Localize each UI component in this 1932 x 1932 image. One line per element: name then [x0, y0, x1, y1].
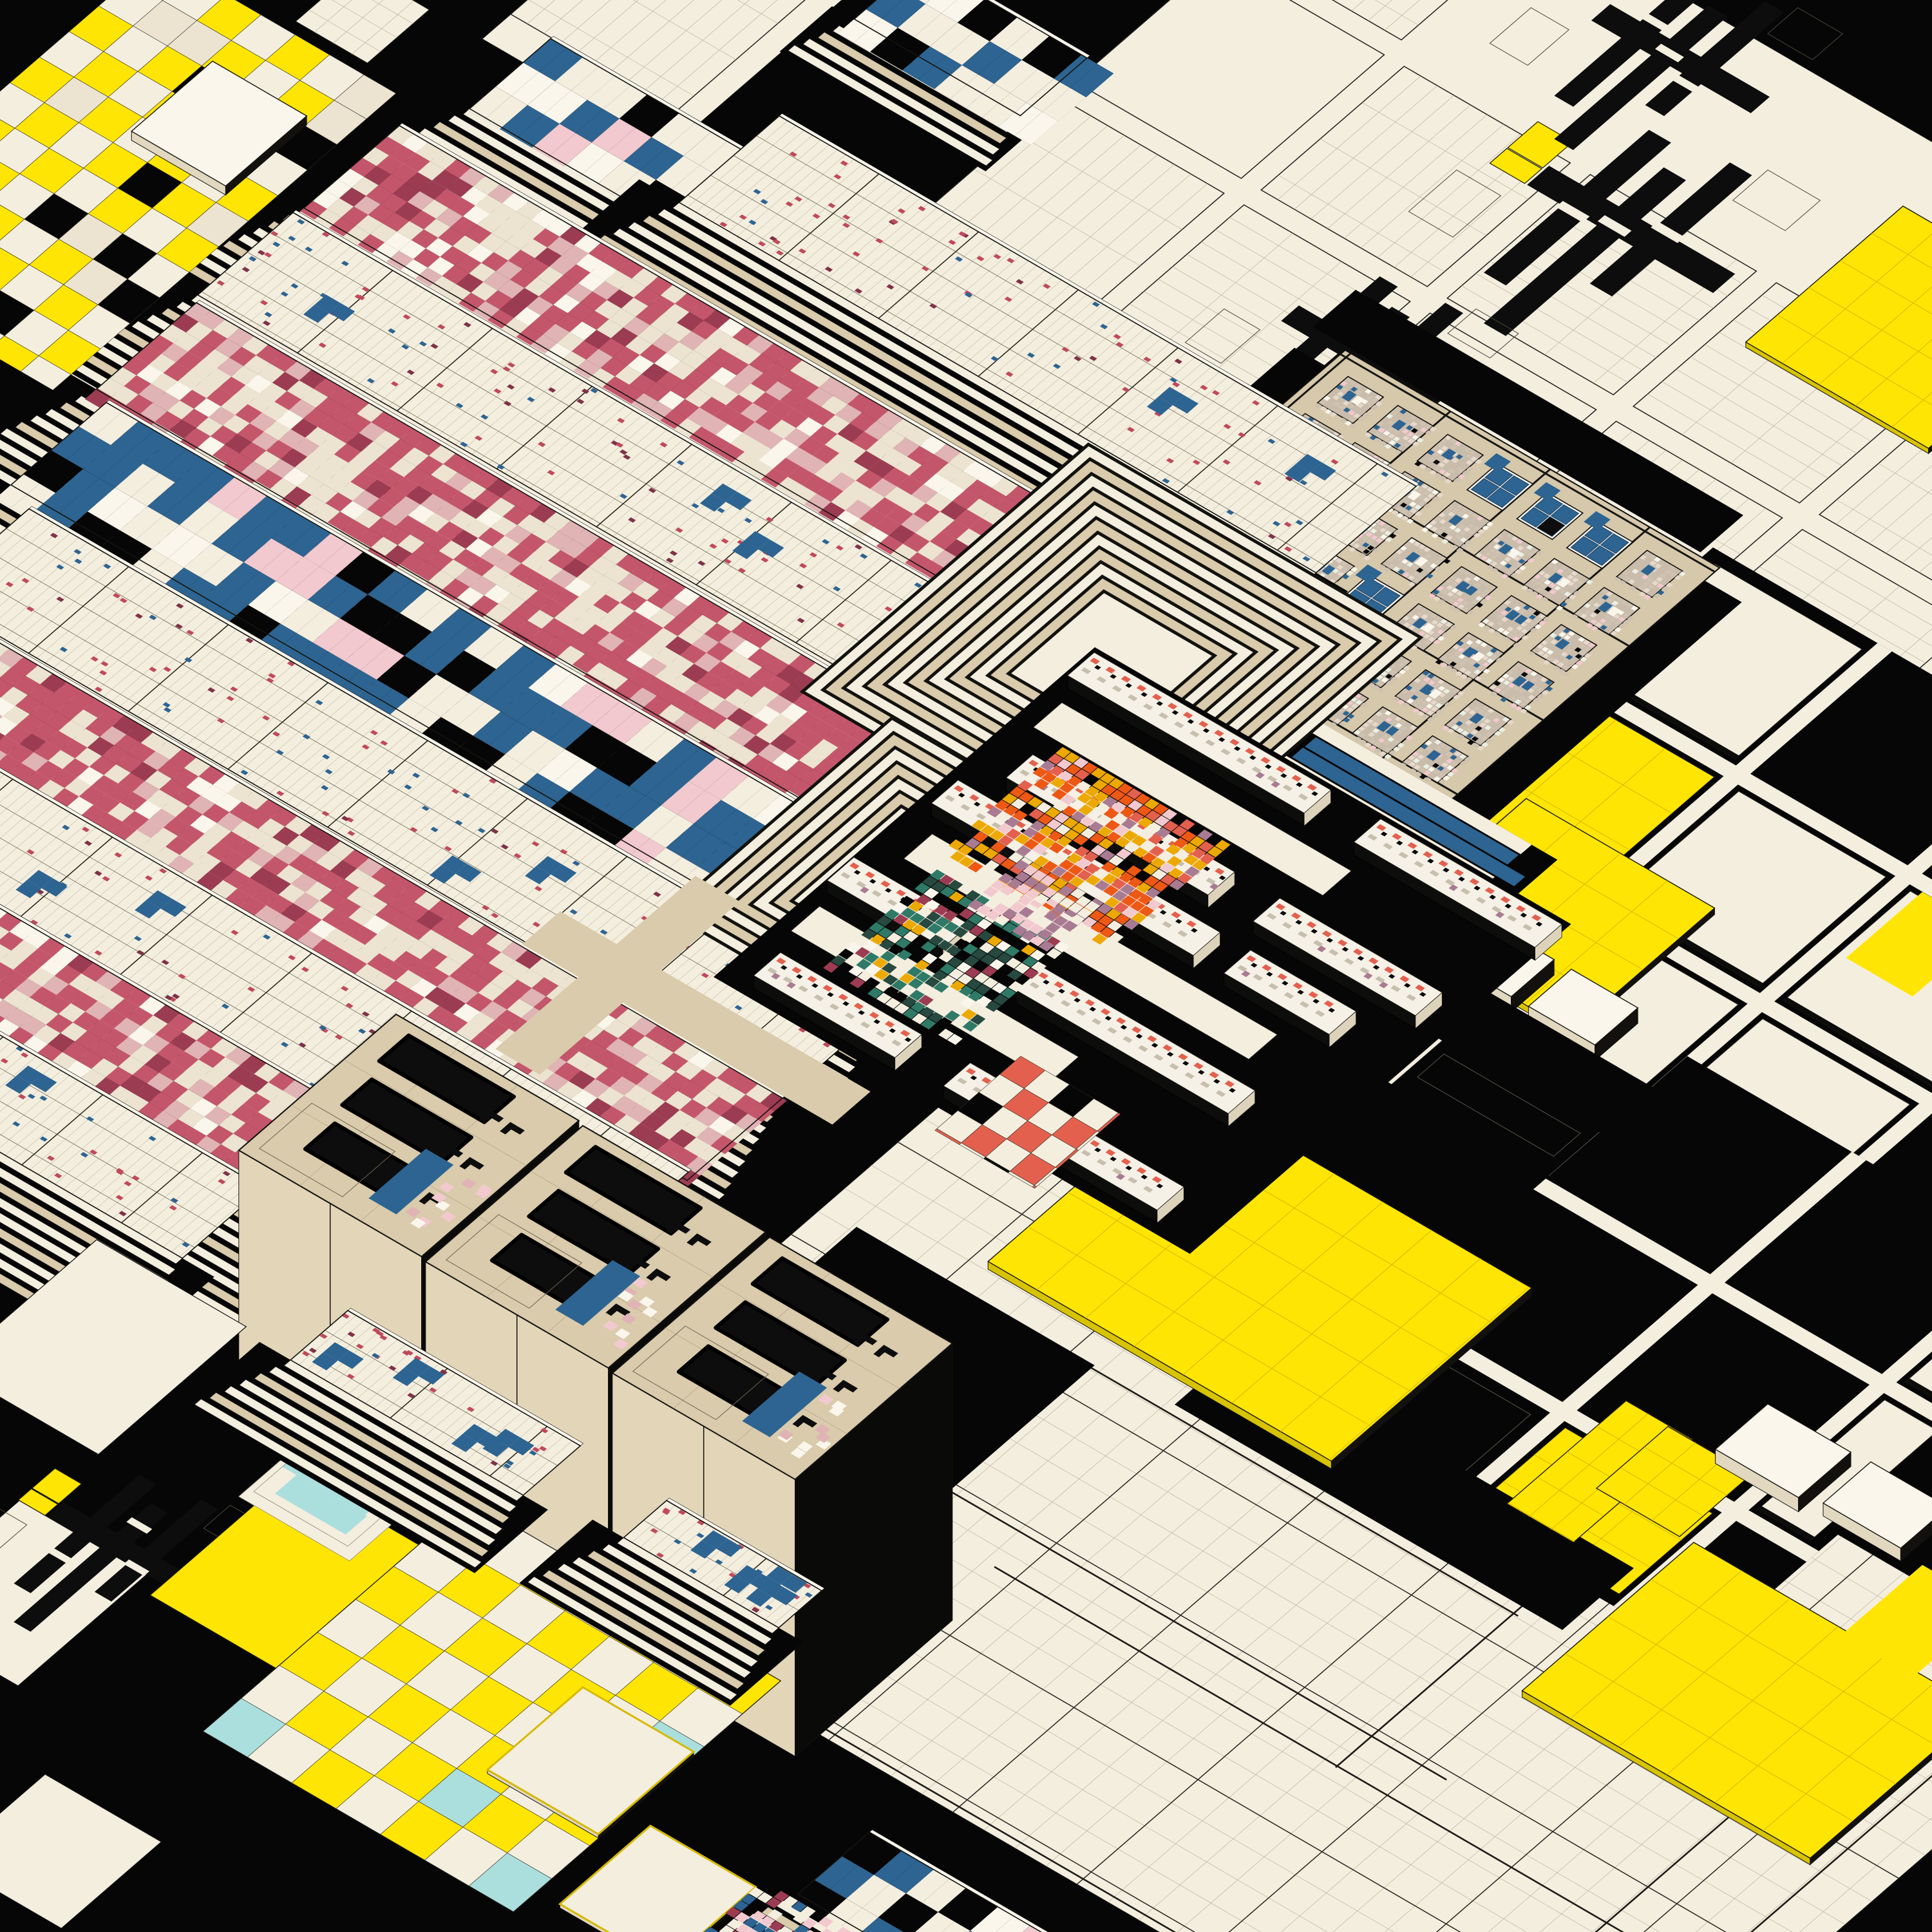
generative-isometric-artwork — [0, 0, 1932, 1932]
artwork-stage — [0, 0, 1932, 1932]
